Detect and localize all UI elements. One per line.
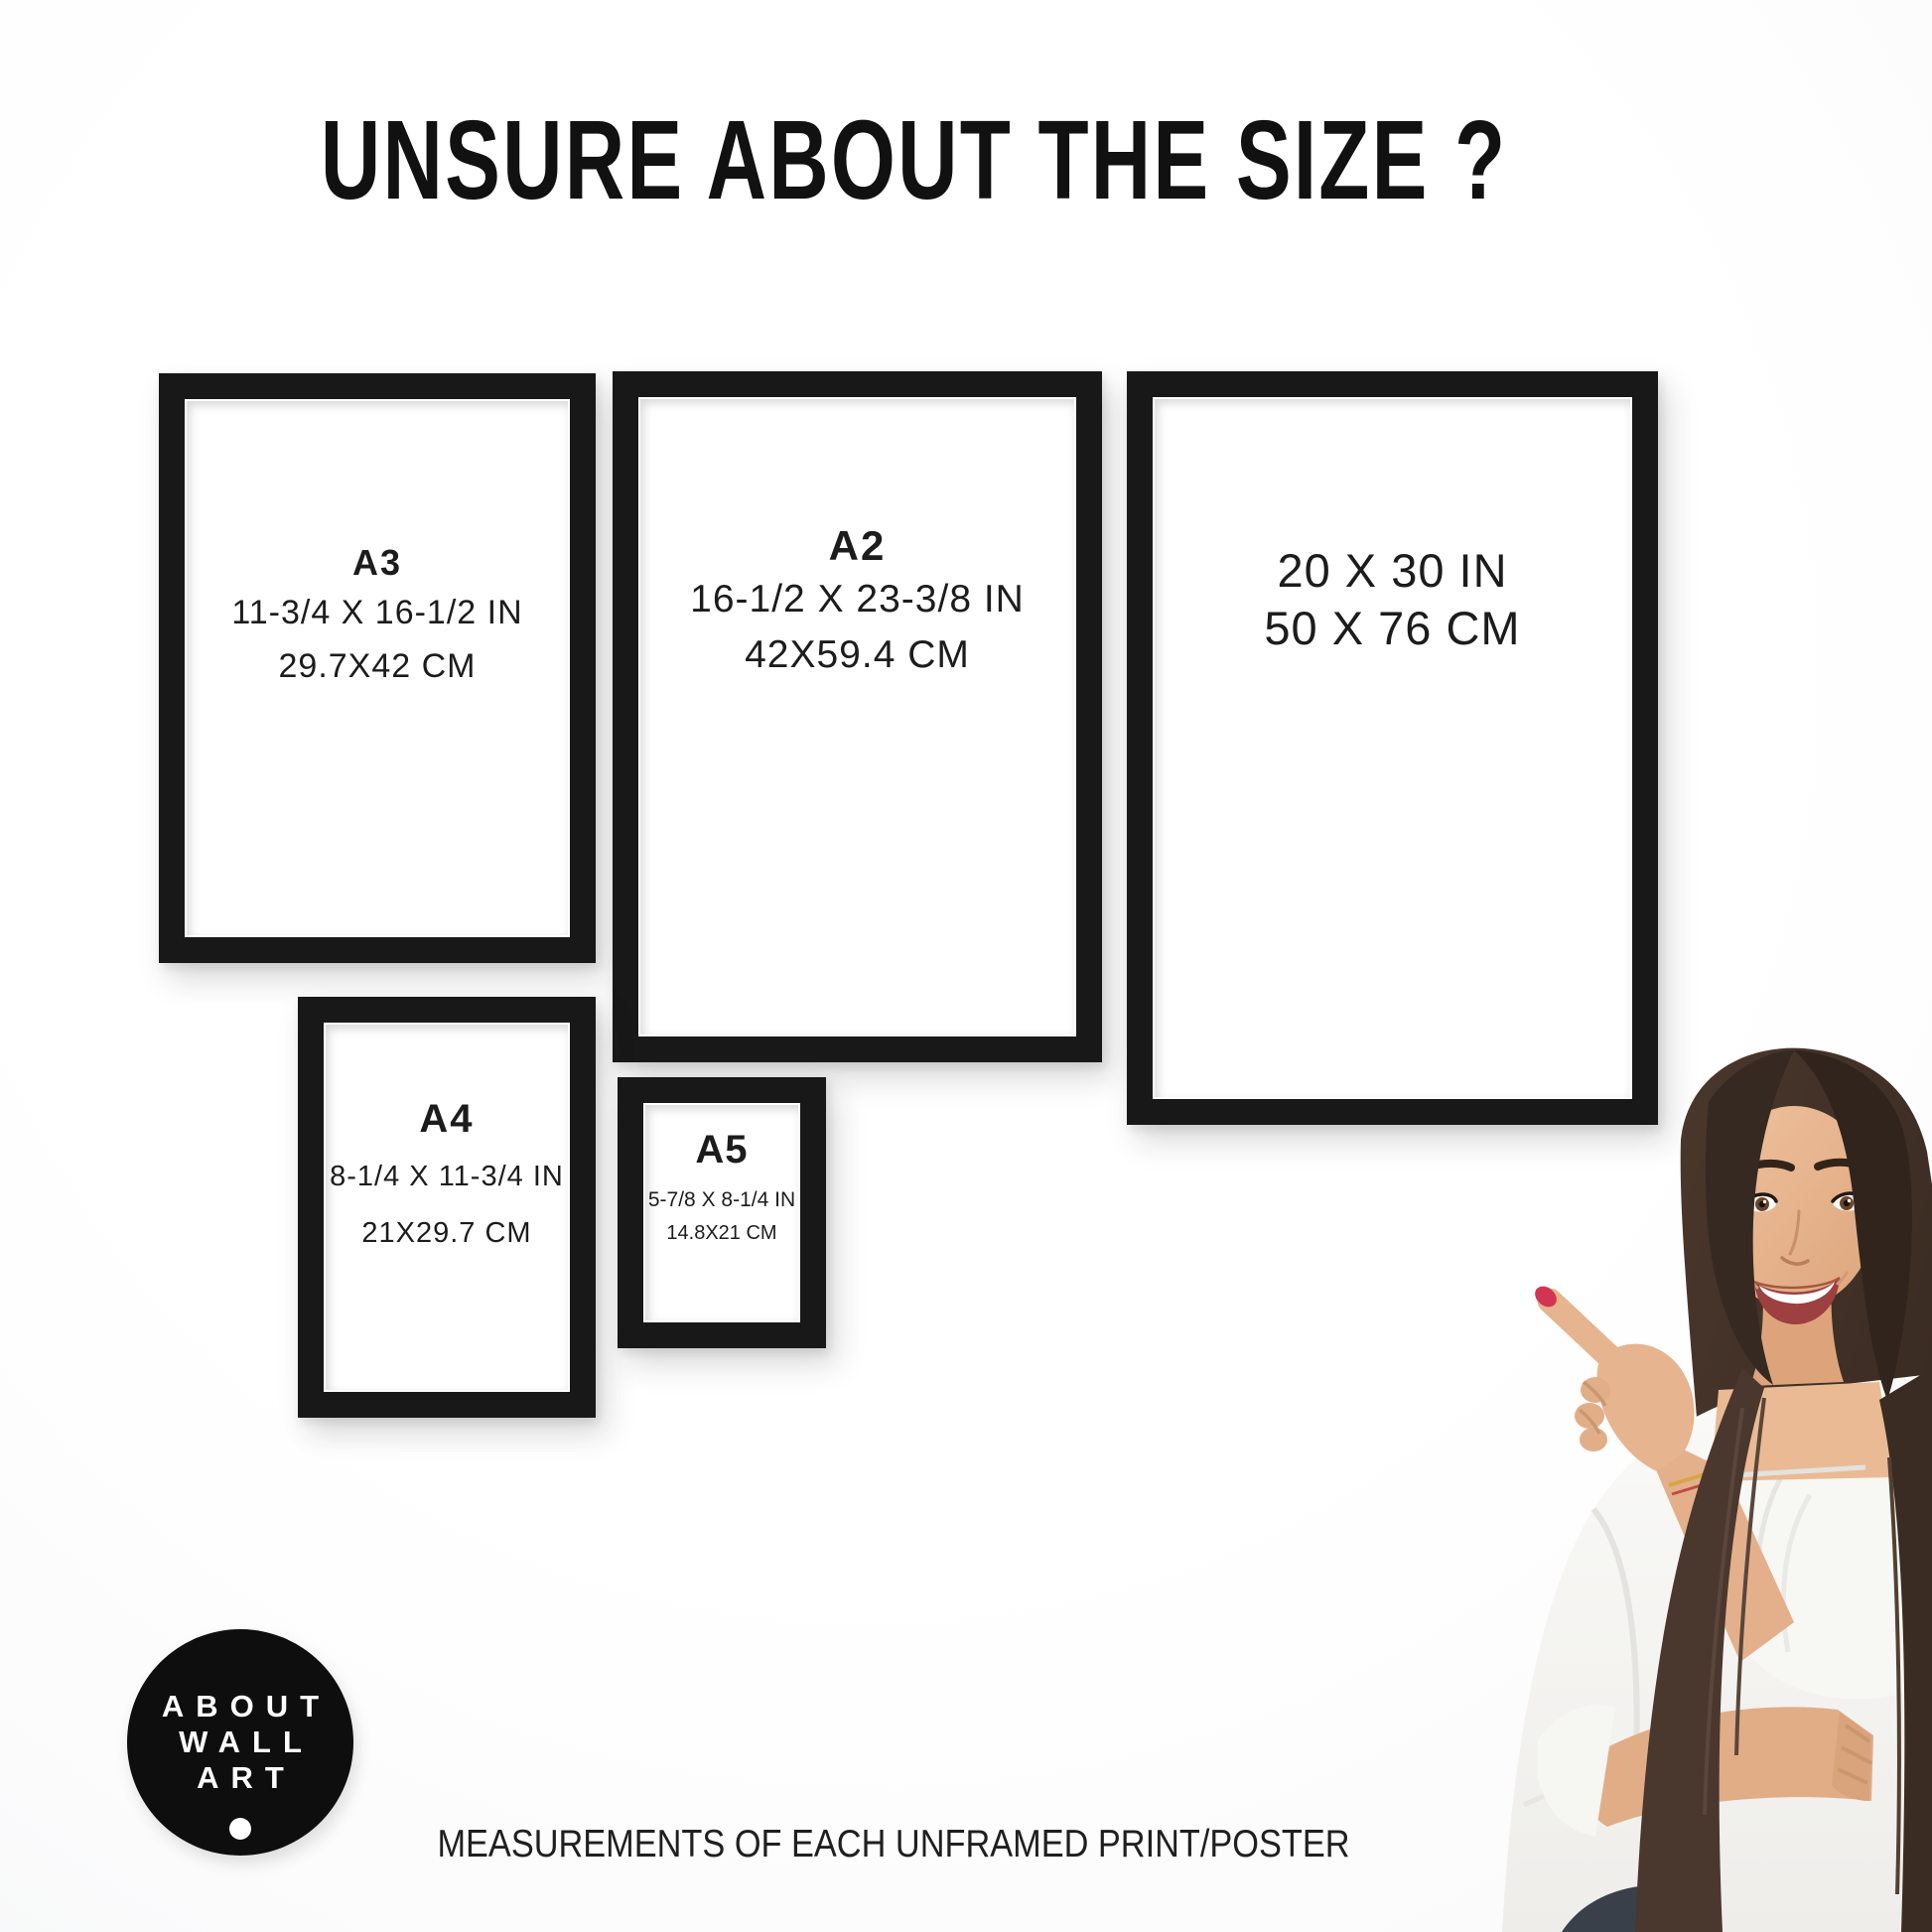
size-frame-a5: A5 5-7/8 X 8-1/4 IN 14.8X21 CM (618, 1077, 826, 1348)
size-frame-20x30: 20 X 30 IN 50 X 76 CM (1127, 371, 1658, 1125)
frame-a5-cm: 14.8X21 CM (643, 1219, 800, 1247)
frame-20x30-text: 20 X 30 IN 50 X 76 CM (1153, 542, 1632, 657)
logo-line-3: ART (185, 1760, 296, 1796)
woman-pointing-photo (1445, 1040, 1932, 1932)
frame-a3-cm: 29.7X42 CM (185, 639, 570, 693)
size-frame-a4: A4 8-1/4 X 11-3/4 IN 21X29.7 CM (298, 997, 596, 1418)
frame-a4-label: A4 (324, 1096, 570, 1142)
frame-a2-text: A2 16-1/2 X 23-3/8 IN 42X59.4 CM (638, 520, 1076, 683)
frame-a2-cm: 42X59.4 CM (638, 627, 1076, 683)
frame-paper (1155, 399, 1630, 1097)
logo-dot-icon (229, 1818, 251, 1840)
frame-a3-label: A3 (185, 540, 570, 586)
size-frame-a2: A2 16-1/2 X 23-3/8 IN 42X59.4 CM (613, 371, 1102, 1062)
frame-20x30-cm: 50 X 76 CM (1153, 600, 1632, 657)
frame-a3-text: A3 11-3/4 X 16-1/2 IN 29.7X42 CM (185, 540, 570, 693)
frame-a4-text: A4 8-1/4 X 11-3/4 IN 21X29.7 CM (324, 1096, 570, 1257)
frame-a3-inches: 11-3/4 X 16-1/2 IN (185, 586, 570, 639)
frame-a5-label: A5 (643, 1128, 800, 1172)
frame-a5-text: A5 5-7/8 X 8-1/4 IN 14.8X21 CM (643, 1128, 800, 1247)
frame-a4-cm: 21X29.7 CM (324, 1209, 570, 1257)
frame-a2-inches: 16-1/2 X 23-3/8 IN (638, 572, 1076, 627)
frame-a4-inches: 8-1/4 X 11-3/4 IN (324, 1152, 570, 1201)
frame-a5-inches: 5-7/8 X 8-1/4 IN (643, 1185, 800, 1215)
about-wall-art-logo: ABOUT WALL ART (127, 1629, 353, 1856)
logo-line-2: WALL (167, 1725, 314, 1760)
frame-20x30-inches: 20 X 30 IN (1153, 542, 1632, 600)
size-guide-poster: UNSURE ABOUT THE SIZE ? A3 11-3/4 X 16-1… (0, 0, 1932, 1932)
size-frame-a3: A3 11-3/4 X 16-1/2 IN 29.7X42 CM (159, 373, 596, 963)
frame-a2-label: A2 (638, 520, 1076, 572)
logo-line-1: ABOUT (150, 1689, 331, 1725)
page-title: UNSURE ABOUT THE SIZE ? (321, 95, 1298, 224)
measurements-caption: MEASUREMENTS OF EACH UNFRAMED PRINT/POST… (369, 1823, 1418, 1866)
frame-paper (640, 399, 1074, 1035)
